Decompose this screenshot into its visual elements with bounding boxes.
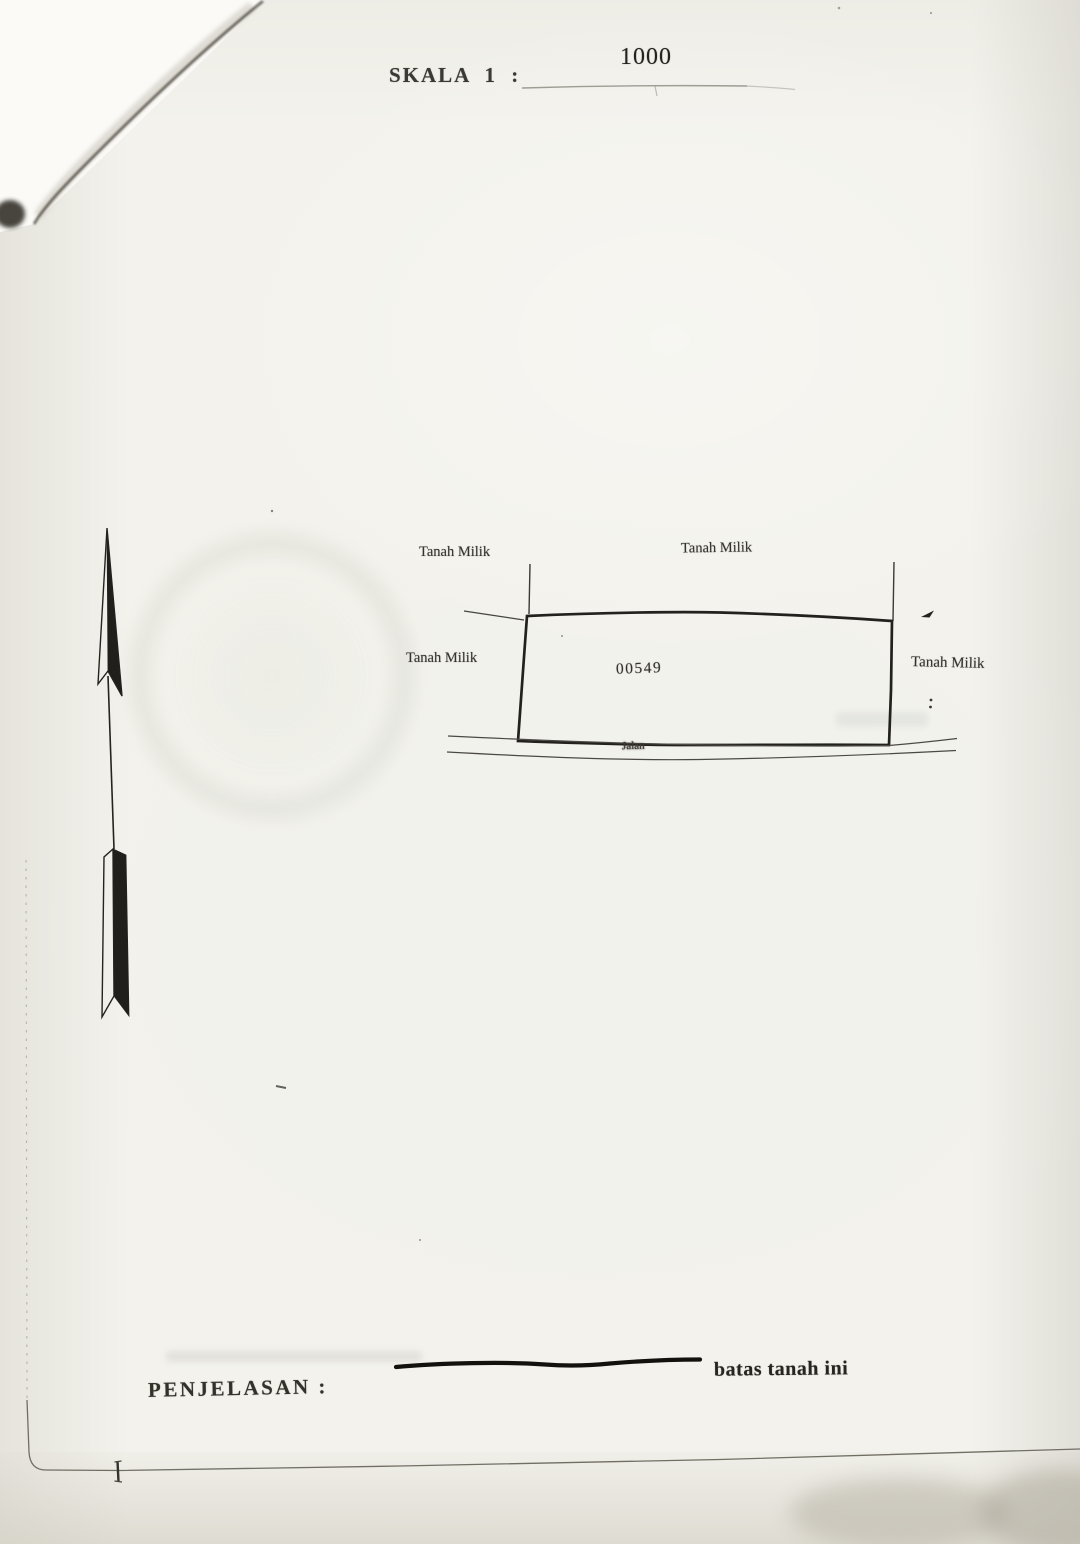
neighbor-label-top-center: Tanah Milik <box>681 540 752 558</box>
legend-label: PENJELASAN : <box>148 1374 328 1403</box>
north-arrow-icon <box>98 528 129 1017</box>
direction-dash-mark <box>921 611 934 618</box>
legend-boundary-line <box>396 1360 700 1368</box>
sketch-linework <box>0 0 1080 1544</box>
page-corner-fold <box>0 0 265 232</box>
parcel-number: 00549 <box>616 659 663 679</box>
colon-mark <box>929 699 932 709</box>
neighbor-label-top-left: Tanah Milik <box>419 544 490 561</box>
scanned-document-page: SKALA 1 : 1000 Tanah Milik Tanah Milik T… <box>0 0 1080 1544</box>
parcel-outline <box>518 612 892 745</box>
neighbor-label-right: Tanah Milik <box>911 654 985 673</box>
boundary-tick-left <box>464 611 524 620</box>
boundary-extension-right <box>893 562 894 621</box>
scale-underline <box>522 86 795 96</box>
boundary-extension-left <box>529 564 530 614</box>
legend-boundary-text: batas tanah ini <box>714 1357 848 1381</box>
scale-value: 1000 <box>620 44 672 71</box>
scale-label: SKALA 1 : <box>389 63 520 88</box>
neighbor-label-left: Tanah Milik <box>406 650 477 667</box>
parcel-sketch <box>447 562 957 760</box>
road-label: Jalan <box>622 740 645 752</box>
road-edge-lower <box>447 751 956 760</box>
paper-specks <box>271 7 932 1241</box>
